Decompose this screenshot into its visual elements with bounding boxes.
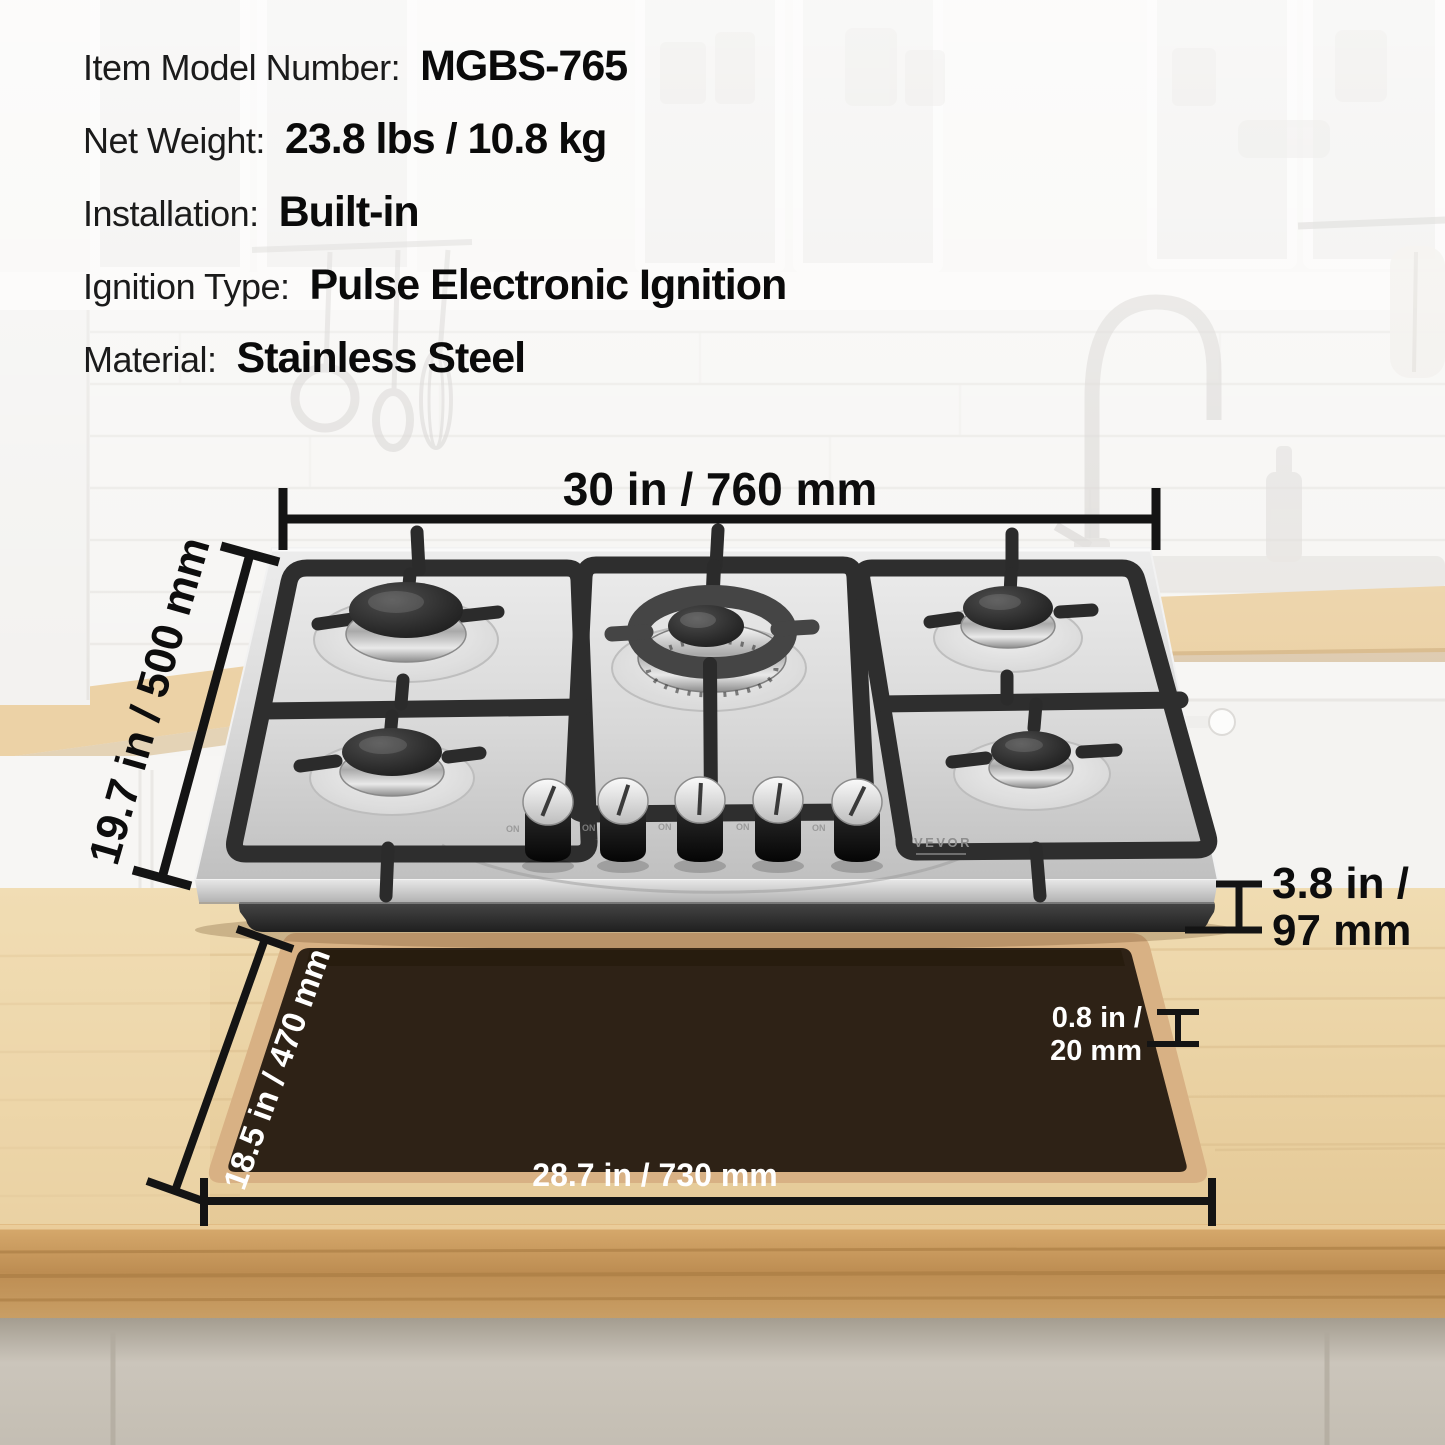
dimension-label-height-line1: 3.8 in / [1272,860,1411,907]
knob-on-mark: ON [812,823,826,833]
spec-list: Item Model Number: MGBS-765 Net Weight: … [83,42,786,407]
dimension-label-width: 30 in / 760 mm [420,462,1020,516]
knob-on-mark: ON [736,822,750,832]
spec-value: MGBS-765 [420,42,627,91]
spec-label: Material: [83,339,217,381]
burner-top-left [346,582,466,662]
spec-value: Pulse Electronic Ignition [310,261,787,310]
spec-row-ignition: Ignition Type: Pulse Electronic Ignition [83,261,786,334]
spec-value: 23.8 lbs / 10.8 kg [285,115,606,164]
burner-top-right [961,586,1055,648]
lower-cabinets [0,1318,1445,1445]
spec-label: Net Weight: [83,120,265,162]
spec-value: Built-in [279,188,419,237]
dimension-label-height: 3.8 in / 97 mm [1272,860,1411,954]
spec-label: Ignition Type: [83,266,290,308]
knob-on-mark: ON [506,824,520,834]
dimension-label-height-line2: 97 mm [1272,907,1411,954]
spec-row-model: Item Model Number: MGBS-765 [83,42,786,115]
burner-bottom-left [340,728,444,796]
dimension-label-thickness-line1: 0.8 in / [950,1002,1142,1035]
spec-label: Installation: [83,193,259,235]
cabinet-knob [1209,709,1235,735]
spec-row-weight: Net Weight: 23.8 lbs / 10.8 kg [83,115,786,188]
spec-label: Item Model Number: [83,47,400,89]
product-infographic: Item Model Number: MGBS-765 Net Weight: … [0,0,1445,1445]
brand-logo: VEVOR [914,835,972,850]
brand-tagline-line [916,853,966,855]
dimension-label-cutout-width: 28.7 in / 730 mm [355,1157,955,1194]
dimension-label-counter-thickness: 0.8 in / 20 mm [950,1002,1142,1068]
dimension-label-thickness-line2: 20 mm [950,1035,1142,1068]
spec-row-installation: Installation: Built-in [83,188,786,261]
spec-row-material: Material: Stainless Steel [83,334,786,407]
burner-bottom-right [989,731,1073,788]
spec-value: Stainless Steel [237,334,526,383]
knob-on-mark: ON [658,822,672,832]
knob-on-mark: ON [582,823,596,833]
